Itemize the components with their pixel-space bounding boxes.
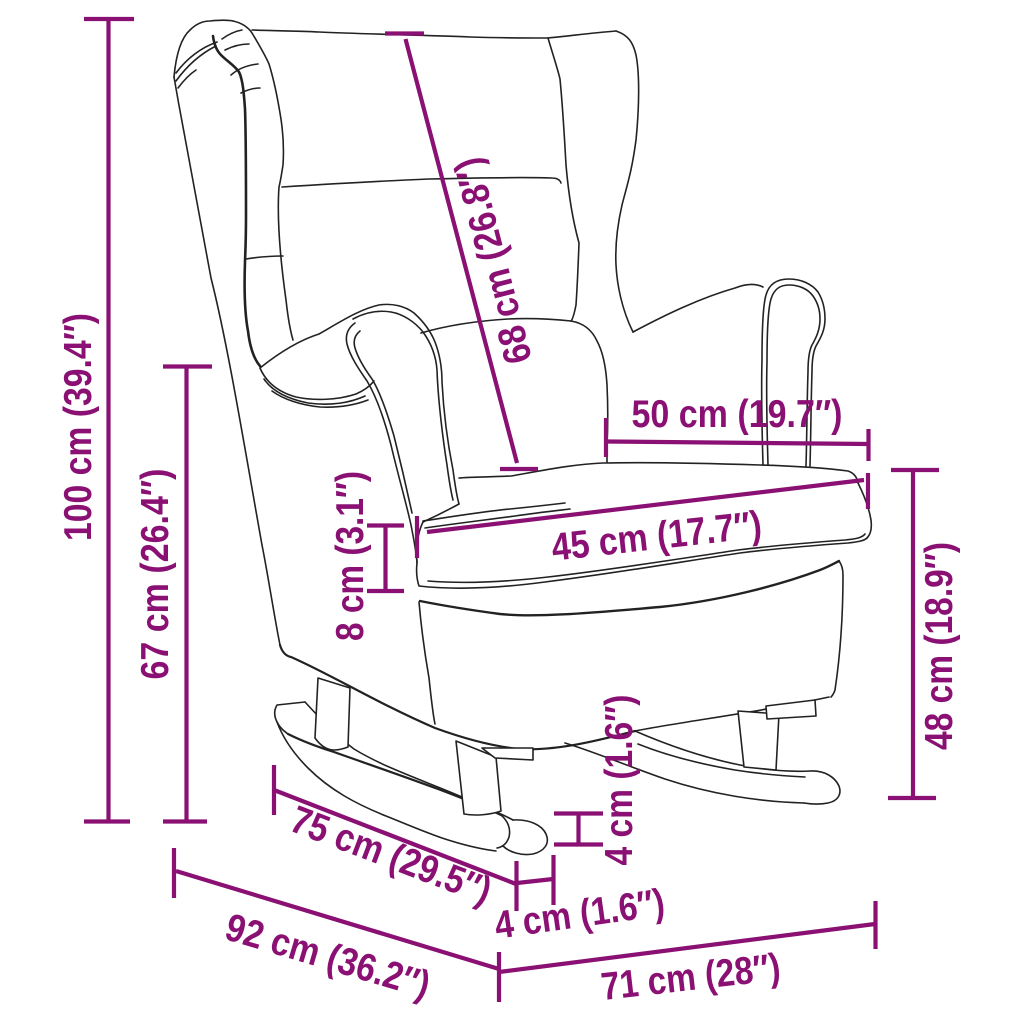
- svg-text:50 cm (19.7″): 50 cm (19.7″): [632, 393, 843, 436]
- svg-text:92 cm (36.2″): 92 cm (36.2″): [220, 906, 434, 1007]
- svg-text:4 cm (1.6″): 4 cm (1.6″): [598, 695, 641, 866]
- svg-text:75 cm (29.5″): 75 cm (29.5″): [285, 798, 498, 913]
- svg-text:48 cm (18.9″): 48 cm (18.9″): [918, 542, 961, 750]
- svg-text:68 cm (26.8″): 68 cm (26.8″): [446, 153, 540, 368]
- svg-text:100 cm (39.4″): 100 cm (39.4″): [57, 313, 100, 541]
- svg-text:67 cm (26.4″): 67 cm (26.4″): [134, 469, 177, 680]
- svg-text:8 cm (3.1″): 8 cm (3.1″): [329, 471, 372, 641]
